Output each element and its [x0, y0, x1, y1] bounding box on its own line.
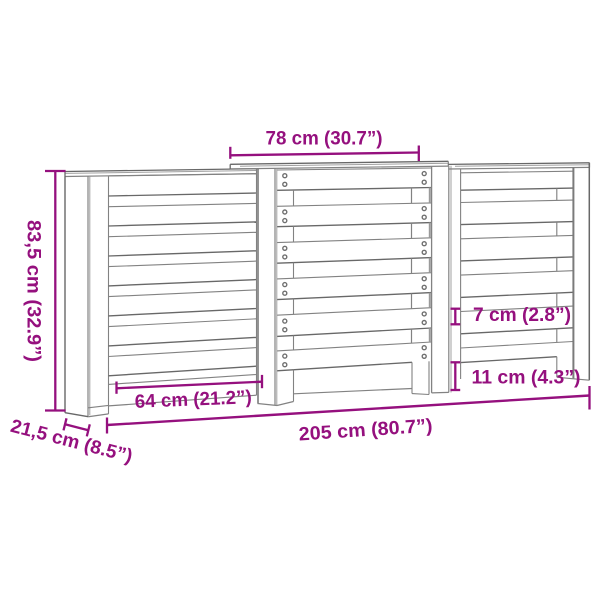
svg-text:78 cm (30.7”): 78 cm (30.7”): [266, 129, 383, 150]
svg-text:11 cm (4.3”): 11 cm (4.3”): [472, 368, 581, 389]
svg-text:83,5 cm (32.9”): 83,5 cm (32.9”): [23, 220, 44, 362]
svg-text:7 cm (2.8”): 7 cm (2.8”): [473, 305, 571, 326]
